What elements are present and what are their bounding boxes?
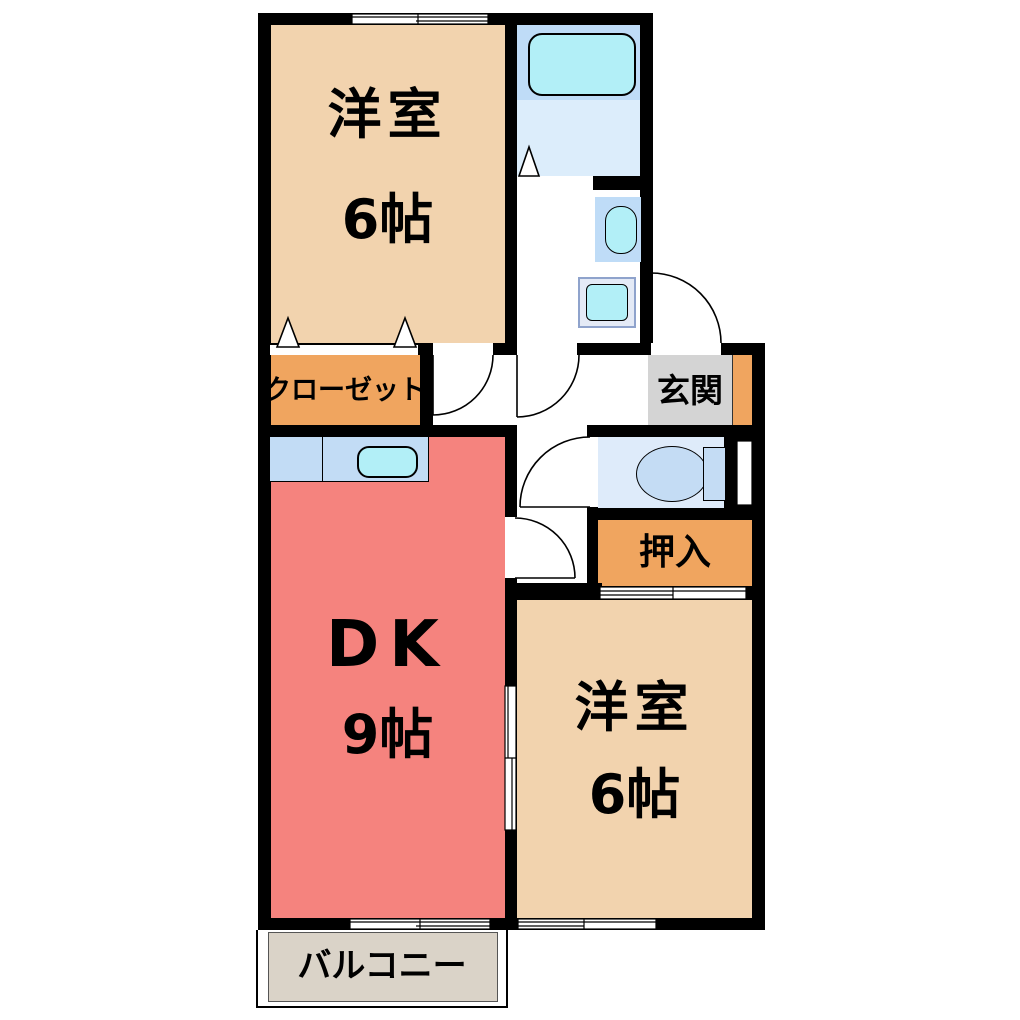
doorway-toilet [587, 437, 598, 507]
wall [258, 918, 765, 930]
closet-label: クローゼット [270, 355, 420, 425]
room-western-bottom-label: 洋室 [517, 670, 752, 745]
wall [587, 508, 752, 520]
wall [505, 583, 602, 600]
floor-plan: 洋室 6帖 クローゼット 玄関 押入 DK 9帖 洋室 6帖 バルコニー [0, 0, 1020, 1020]
wall [724, 437, 752, 508]
door-toilet [520, 437, 590, 507]
balcony-label: バルコニー [268, 932, 496, 1000]
doorway-entrance [651, 343, 721, 355]
bath-floor [517, 100, 640, 176]
toilet-bowl-icon [636, 446, 708, 502]
washbasin-bowl-icon [605, 206, 637, 254]
entrance-strip [732, 355, 753, 425]
room-western-top [270, 25, 505, 343]
room-western-top-label: 洋室 [270, 80, 505, 150]
kitchen-counter-divider [322, 437, 323, 481]
wall [587, 425, 765, 437]
kitchen-sink-icon [357, 446, 418, 478]
door-entrance [651, 273, 721, 343]
wall [598, 586, 752, 600]
doorway-western-top [433, 343, 493, 355]
closet-door-gap [270, 345, 418, 355]
wall [505, 13, 517, 355]
door-washroom [517, 355, 579, 417]
bathtub-icon [528, 33, 636, 96]
room-dk-label: DK [270, 600, 505, 690]
oshiire-label: 押入 [598, 520, 752, 586]
doorway-washroom [517, 343, 577, 355]
room-western-bottom-size: 6帖 [517, 760, 752, 830]
wall [505, 437, 517, 918]
room-western-bottom [517, 600, 752, 918]
wall [593, 176, 653, 190]
wall [258, 13, 653, 25]
door-western-top [433, 355, 493, 415]
washing-machine-tub-icon [586, 284, 628, 321]
door-dk [515, 518, 575, 578]
entrance-label: 玄関 [648, 355, 732, 425]
doorway-dk [505, 517, 517, 578]
toilet-tank-icon [703, 447, 726, 501]
wall [258, 425, 517, 437]
room-dk-size: 9帖 [270, 695, 505, 775]
room-western-top-size: 6帖 [270, 185, 505, 255]
